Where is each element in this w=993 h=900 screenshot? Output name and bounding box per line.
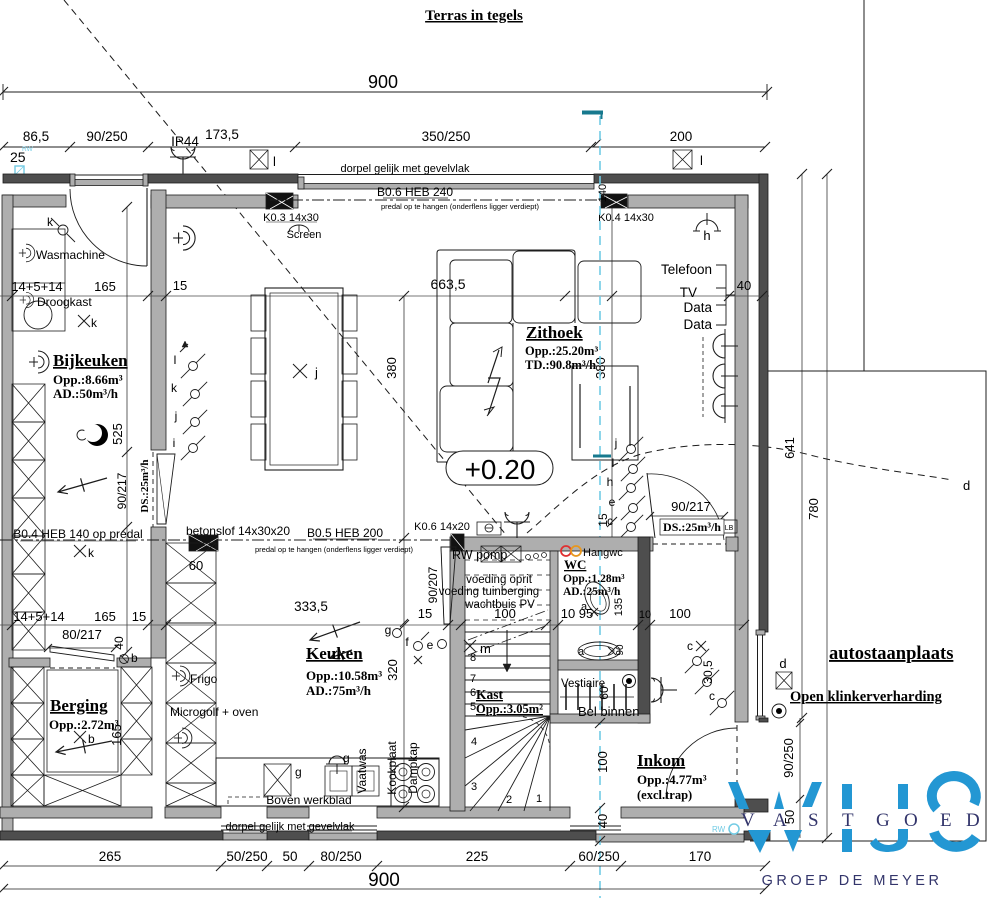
svg-text:50/250: 50/250: [226, 849, 267, 864]
svg-text:Berging: Berging: [50, 696, 108, 715]
svg-text:173,5: 173,5: [205, 127, 239, 142]
svg-text:RW pomp: RW pomp: [452, 548, 507, 562]
svg-text:c: c: [687, 639, 693, 653]
svg-text:K0.6 14x20: K0.6 14x20: [414, 521, 470, 533]
svg-text:e: e: [427, 638, 434, 652]
svg-text:641: 641: [782, 437, 797, 459]
svg-text:dorpel gelijk met gevelvlak: dorpel gelijk met gevelvlak: [340, 163, 470, 175]
svg-text:1: 1: [536, 793, 542, 805]
svg-text:Zithoek: Zithoek: [526, 323, 583, 342]
svg-text:663,5: 663,5: [430, 276, 465, 292]
svg-text:Droogkast: Droogkast: [37, 295, 92, 309]
svg-text:B0.6 HEB 240: B0.6 HEB 240: [377, 185, 453, 199]
svg-text:k: k: [47, 215, 54, 229]
svg-text:90/250: 90/250: [781, 738, 796, 778]
svg-text:15: 15: [132, 609, 146, 624]
svg-text:TD.:90.8m³/h: TD.:90.8m³/h: [525, 358, 596, 372]
svg-text:DS.:25m³/h: DS.:25m³/h: [663, 520, 721, 534]
svg-text:Opp.:8.66m³: Opp.:8.66m³: [53, 372, 123, 387]
svg-text:Open klinkerverharding: Open klinkerverharding: [790, 689, 943, 705]
svg-text:10: 10: [639, 609, 651, 621]
svg-text:60: 60: [597, 686, 611, 700]
svg-text:350/250: 350/250: [422, 129, 471, 144]
svg-text:2: 2: [506, 794, 512, 806]
svg-text:D: D: [966, 810, 980, 831]
svg-text:Telefoon: Telefoon: [661, 262, 712, 277]
svg-text:RW: RW: [712, 825, 726, 834]
svg-text:Bijkeuken: Bijkeuken: [53, 351, 128, 370]
svg-text:IP44: IP44: [171, 134, 199, 149]
svg-text:Kookplaat: Kookplaat: [385, 741, 399, 795]
svg-text:c: c: [709, 689, 715, 703]
svg-text:900: 900: [368, 72, 398, 92]
svg-text:225: 225: [466, 849, 489, 864]
svg-text:Opp.:3.05m²: Opp.:3.05m²: [476, 702, 543, 716]
svg-text:T: T: [842, 810, 854, 831]
svg-text:333,5: 333,5: [294, 599, 328, 614]
svg-text:k: k: [171, 381, 178, 395]
svg-text:a: a: [578, 646, 585, 658]
svg-text:90/217: 90/217: [115, 472, 129, 509]
svg-text:15: 15: [418, 606, 432, 621]
svg-text:7: 7: [470, 673, 476, 685]
svg-text:165: 165: [94, 279, 116, 294]
svg-text:i: i: [612, 456, 615, 470]
svg-text:b: b: [131, 651, 138, 665]
svg-text:80/250: 80/250: [320, 849, 361, 864]
svg-text:15: 15: [596, 513, 610, 527]
svg-text:voeding tuinberging: voeding tuinberging: [439, 586, 539, 598]
svg-text:Bel binnen: Bel binnen: [578, 704, 639, 719]
svg-text:G: G: [876, 810, 890, 831]
svg-text:86,5: 86,5: [23, 129, 49, 144]
svg-text:S: S: [808, 810, 819, 831]
svg-text:90: 90: [615, 644, 626, 656]
svg-text:O: O: [904, 810, 918, 831]
svg-text:40: 40: [737, 278, 751, 293]
svg-text:165: 165: [109, 724, 124, 746]
svg-text:Boven werkblad: Boven werkblad: [266, 793, 351, 807]
svg-text:265: 265: [99, 849, 122, 864]
svg-text:l: l: [273, 154, 276, 169]
svg-text:Dampkap: Dampkap: [406, 742, 420, 794]
svg-text:165: 165: [94, 609, 116, 624]
svg-text:90/217: 90/217: [671, 499, 711, 514]
svg-text:90/207: 90/207: [426, 566, 440, 603]
svg-text:140: 140: [597, 184, 609, 202]
svg-text:Vaatwas: Vaatwas: [355, 748, 369, 793]
svg-text:30,5: 30,5: [701, 660, 715, 684]
svg-text:k: k: [91, 316, 98, 330]
svg-text:predal op te hangen (onderflen: predal op te hangen (onderflens ligger v…: [381, 202, 540, 211]
svg-text:Opp.:10.58m³: Opp.:10.58m³: [306, 668, 382, 683]
svg-text:Opp.:1.28m³: Opp.:1.28m³: [563, 573, 625, 585]
svg-text:g: g: [295, 765, 302, 779]
svg-text:100: 100: [669, 606, 691, 621]
svg-text:h: h: [607, 475, 614, 489]
svg-text:d: d: [779, 656, 786, 671]
svg-text:Terras in tegels: Terras in tegels: [425, 8, 523, 24]
svg-text:Screen: Screen: [287, 229, 322, 241]
svg-text:4: 4: [471, 736, 477, 748]
svg-text:LB: LB: [725, 525, 734, 532]
svg-text:Opp.:25.20m³: Opp.:25.20m³: [525, 344, 598, 358]
svg-text:j: j: [174, 409, 178, 423]
svg-text:Wasmachine: Wasmachine: [36, 248, 105, 262]
svg-text:AD.:75m³/h: AD.:75m³/h: [306, 683, 372, 698]
svg-text:Microgolf + oven: Microgolf + oven: [170, 705, 258, 719]
svg-text:b: b: [88, 732, 95, 746]
svg-text:j: j: [614, 436, 618, 450]
svg-text:GROEP DE MEYER: GROEP DE MEYER: [762, 873, 943, 889]
svg-text:j: j: [314, 365, 318, 380]
svg-text:14+5+14: 14+5+14: [11, 279, 62, 294]
svg-text:h: h: [703, 228, 710, 243]
svg-text:60: 60: [189, 558, 203, 573]
svg-text:80/217: 80/217: [62, 627, 102, 642]
svg-text:predal op te hangen (onderflen: predal op te hangen (onderflens ligger v…: [255, 545, 414, 554]
svg-text:AD.:50m³/h: AD.:50m³/h: [53, 386, 119, 401]
svg-text:780: 780: [806, 498, 821, 520]
svg-text:betonslof 14x30x20: betonslof 14x30x20: [186, 524, 290, 538]
svg-text:Data: Data: [683, 300, 712, 315]
svg-text:14+5+14: 14+5+14: [13, 609, 64, 624]
svg-text:40: 40: [112, 636, 126, 650]
svg-text:Frigo: Frigo: [190, 672, 218, 686]
svg-text:TV: TV: [680, 285, 697, 300]
svg-text:525: 525: [110, 423, 125, 445]
svg-text:B0.5 HEB 200: B0.5 HEB 200: [307, 526, 383, 540]
svg-text:100: 100: [494, 606, 516, 621]
svg-text:320: 320: [385, 659, 400, 681]
svg-text:15: 15: [173, 278, 187, 293]
svg-text:e: e: [609, 495, 616, 509]
svg-text:Data: Data: [683, 317, 712, 332]
svg-text:RW: RW: [22, 146, 34, 153]
svg-text:Kast: Kast: [476, 687, 504, 702]
svg-text:A: A: [773, 810, 787, 831]
svg-text:WC: WC: [564, 557, 586, 572]
svg-text:40: 40: [595, 814, 610, 828]
svg-text:100: 100: [595, 751, 610, 773]
svg-text:8: 8: [470, 652, 476, 664]
svg-text:50: 50: [282, 849, 297, 864]
svg-text:B0.4 HEB 140 op predal: B0.4 HEB 140 op predal: [13, 527, 142, 541]
svg-text:K0.4 14x30: K0.4 14x30: [598, 212, 654, 224]
svg-text:380: 380: [384, 357, 399, 379]
svg-text:Opp.:4.77m³: Opp.:4.77m³: [637, 772, 707, 787]
svg-text:DS.:25m³/h: DS.:25m³/h: [139, 459, 151, 512]
svg-text:m: m: [480, 641, 491, 656]
svg-text:90/250: 90/250: [86, 129, 127, 144]
svg-text:60/250: 60/250: [578, 849, 619, 864]
svg-text:170: 170: [689, 849, 712, 864]
svg-text:Inkom: Inkom: [637, 751, 685, 770]
svg-text:E: E: [940, 810, 952, 831]
svg-text:+0.20: +0.20: [465, 454, 536, 485]
svg-text:d: d: [963, 478, 970, 493]
svg-text:200: 200: [670, 129, 693, 144]
svg-text:l: l: [174, 353, 177, 367]
svg-text:g: g: [343, 751, 350, 765]
svg-text:3: 3: [471, 781, 477, 793]
svg-text:i: i: [173, 436, 176, 450]
svg-text:voeding oprit: voeding oprit: [466, 574, 533, 586]
svg-text:135: 135: [613, 598, 625, 616]
svg-text:Keuken: Keuken: [306, 644, 363, 663]
svg-text:l: l: [700, 153, 703, 168]
svg-text:autostaanplaats: autostaanplaats: [829, 644, 953, 664]
svg-text:k: k: [88, 546, 95, 560]
svg-text:10 95: 10 95: [561, 606, 594, 621]
svg-text:(excl.trap): (excl.trap): [637, 788, 692, 802]
svg-text:V: V: [741, 810, 755, 831]
svg-text:900: 900: [368, 870, 400, 891]
svg-text:Hangwc: Hangwc: [583, 547, 623, 559]
